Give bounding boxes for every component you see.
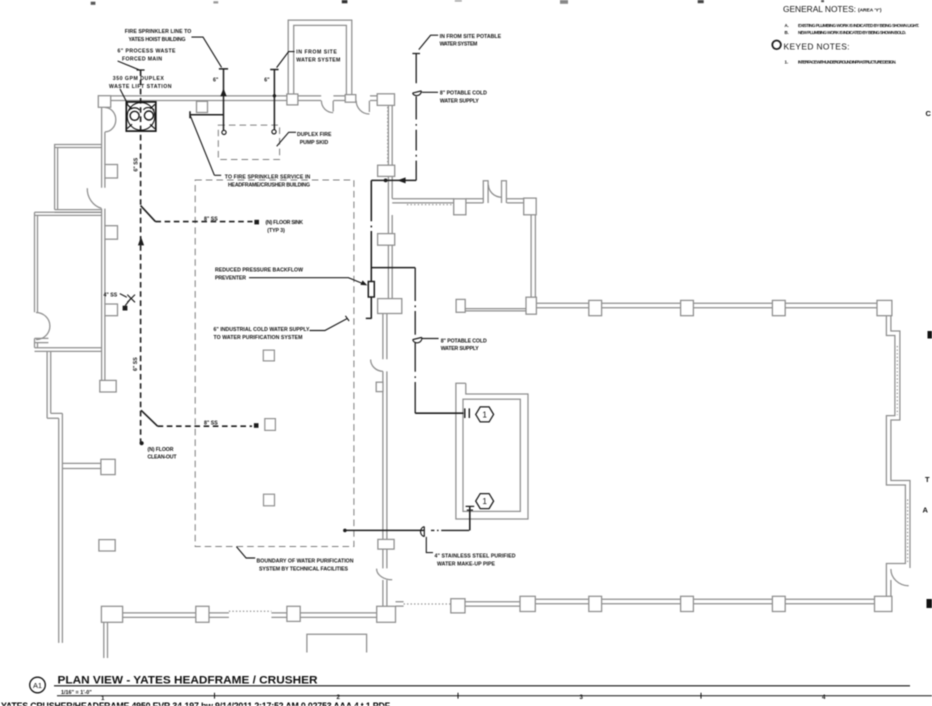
svg-text:(AREA 'Y'): (AREA 'Y') [858,8,882,14]
svg-text:FIRE SPRINKLER LINE TO: FIRE SPRINKLER LINE TO [125,29,192,35]
svg-text:YATES CRUSHER/HEADFRAME 4950 E: YATES CRUSHER/HEADFRAME 4950 EVR 34-197 … [1,701,391,706]
svg-text:GENERAL NOTES:: GENERAL NOTES: [783,4,856,14]
svg-text:YATES HOIST BUILDING: YATES HOIST BUILDING [129,37,186,43]
svg-text:8" SS: 8" SS [204,421,218,427]
svg-text:WATER SUPPLY: WATER SUPPLY [441,346,480,352]
svg-text:EXISTING PLUMBING WORK IS INDI: EXISTING PLUMBING WORK IS INDICATED BY B… [798,23,919,28]
svg-text:(N) FLOOR SINK: (N) FLOOR SINK [266,220,304,226]
svg-text:WATER SUPPLY: WATER SUPPLY [440,98,480,104]
svg-text:CLEAN-OUT: CLEAN-OUT [148,455,178,461]
svg-text:6" SS: 6" SS [134,157,140,171]
svg-text:WATER SYSTEM: WATER SYSTEM [296,57,340,63]
svg-text:6" PROCESS WASTE: 6" PROCESS WASTE [118,48,177,54]
svg-text:A1: A1 [33,681,42,690]
svg-text:8" POTABLE COLD: 8" POTABLE COLD [440,91,487,97]
svg-text:HEADFRAME/CRUSHER BUILDING: HEADFRAME/CRUSHER BUILDING [228,182,310,188]
svg-text:350 GPM DUPLEX: 350 GPM DUPLEX [113,76,165,82]
svg-text:4: 4 [822,694,826,701]
svg-text:1/16" = 1'-0": 1/16" = 1'-0" [61,690,92,696]
svg-text:6": 6" [264,78,270,84]
svg-text:TO WATER PURIFICATION SYSTEM: TO WATER PURIFICATION SYSTEM [214,335,303,341]
svg-text:6" INDUSTRIAL COLD WATER SUPPL: 6" INDUSTRIAL COLD WATER SUPPLY [214,327,311,333]
svg-text:6": 6" [213,78,219,84]
svg-text:3: 3 [580,694,584,701]
svg-text:6" SS: 6" SS [133,357,139,371]
svg-text:WASTE LIFT STATION: WASTE LIFT STATION [109,84,172,90]
svg-text:TO FIRE SPRINKLER SERVICE IN: TO FIRE SPRINKLER SERVICE IN [225,174,311,180]
svg-text:BOUNDARY OF WATER PURIFICATION: BOUNDARY OF WATER PURIFICATION [257,559,354,565]
svg-text:(TYP 3): (TYP 3) [267,228,285,234]
svg-text:T: T [925,475,930,484]
svg-text:PUMP SKID: PUMP SKID [300,140,329,146]
svg-text:B.: B. [785,30,789,35]
svg-text:INTERFACE WITH UNDERGROUND INF: INTERFACE WITH UNDERGROUND INFRASTRUCTUR… [798,60,896,65]
svg-text:WATER MAKE-UP PIPE: WATER MAKE-UP PIPE [437,561,496,567]
svg-text:4" STAINLESS STEEL PURIFIED: 4" STAINLESS STEEL PURIFIED [435,554,516,560]
svg-text:NEW PLUMBING WORK IS INDICATED: NEW PLUMBING WORK IS INDICATED BY BEING … [798,30,906,35]
svg-text:SYSTEM BY TECHNICAL FACILITIES: SYSTEM BY TECHNICAL FACILITIES [259,566,349,572]
svg-text:C: C [926,109,932,118]
svg-text:1: 1 [482,497,487,506]
svg-text:PREVENTER: PREVENTER [215,275,246,281]
svg-text:DUPLEX FIRE: DUPLEX FIRE [297,132,332,138]
svg-text:IN FROM SITE: IN FROM SITE [296,50,337,56]
svg-text:4" SS: 4" SS [104,292,118,298]
svg-text:FORCED MAIN: FORCED MAIN [122,56,162,62]
svg-text:1.: 1. [785,60,789,65]
svg-text:REDUCED PRESSURE BACKFLOW: REDUCED PRESSURE BACKFLOW [215,268,303,274]
svg-text:8" SS: 8" SS [204,217,218,223]
svg-text:PLAN VIEW - YATES HEADFRAME /: PLAN VIEW - YATES HEADFRAME / CRUSHER [58,674,318,686]
svg-text:(N) FLOOR: (N) FLOOR [148,447,174,453]
svg-text:2: 2 [337,694,341,701]
svg-text:A.: A. [785,23,789,28]
svg-text:WATER SYSTEM: WATER SYSTEM [440,42,478,48]
svg-text:A: A [923,506,929,515]
svg-text:1: 1 [482,410,487,419]
svg-text:8" POTABLE COLD: 8" POTABLE COLD [441,338,487,344]
svg-text:KEYED NOTES:: KEYED NOTES: [784,42,850,52]
svg-text:IN FROM SITE POTABLE: IN FROM SITE POTABLE [440,34,502,40]
